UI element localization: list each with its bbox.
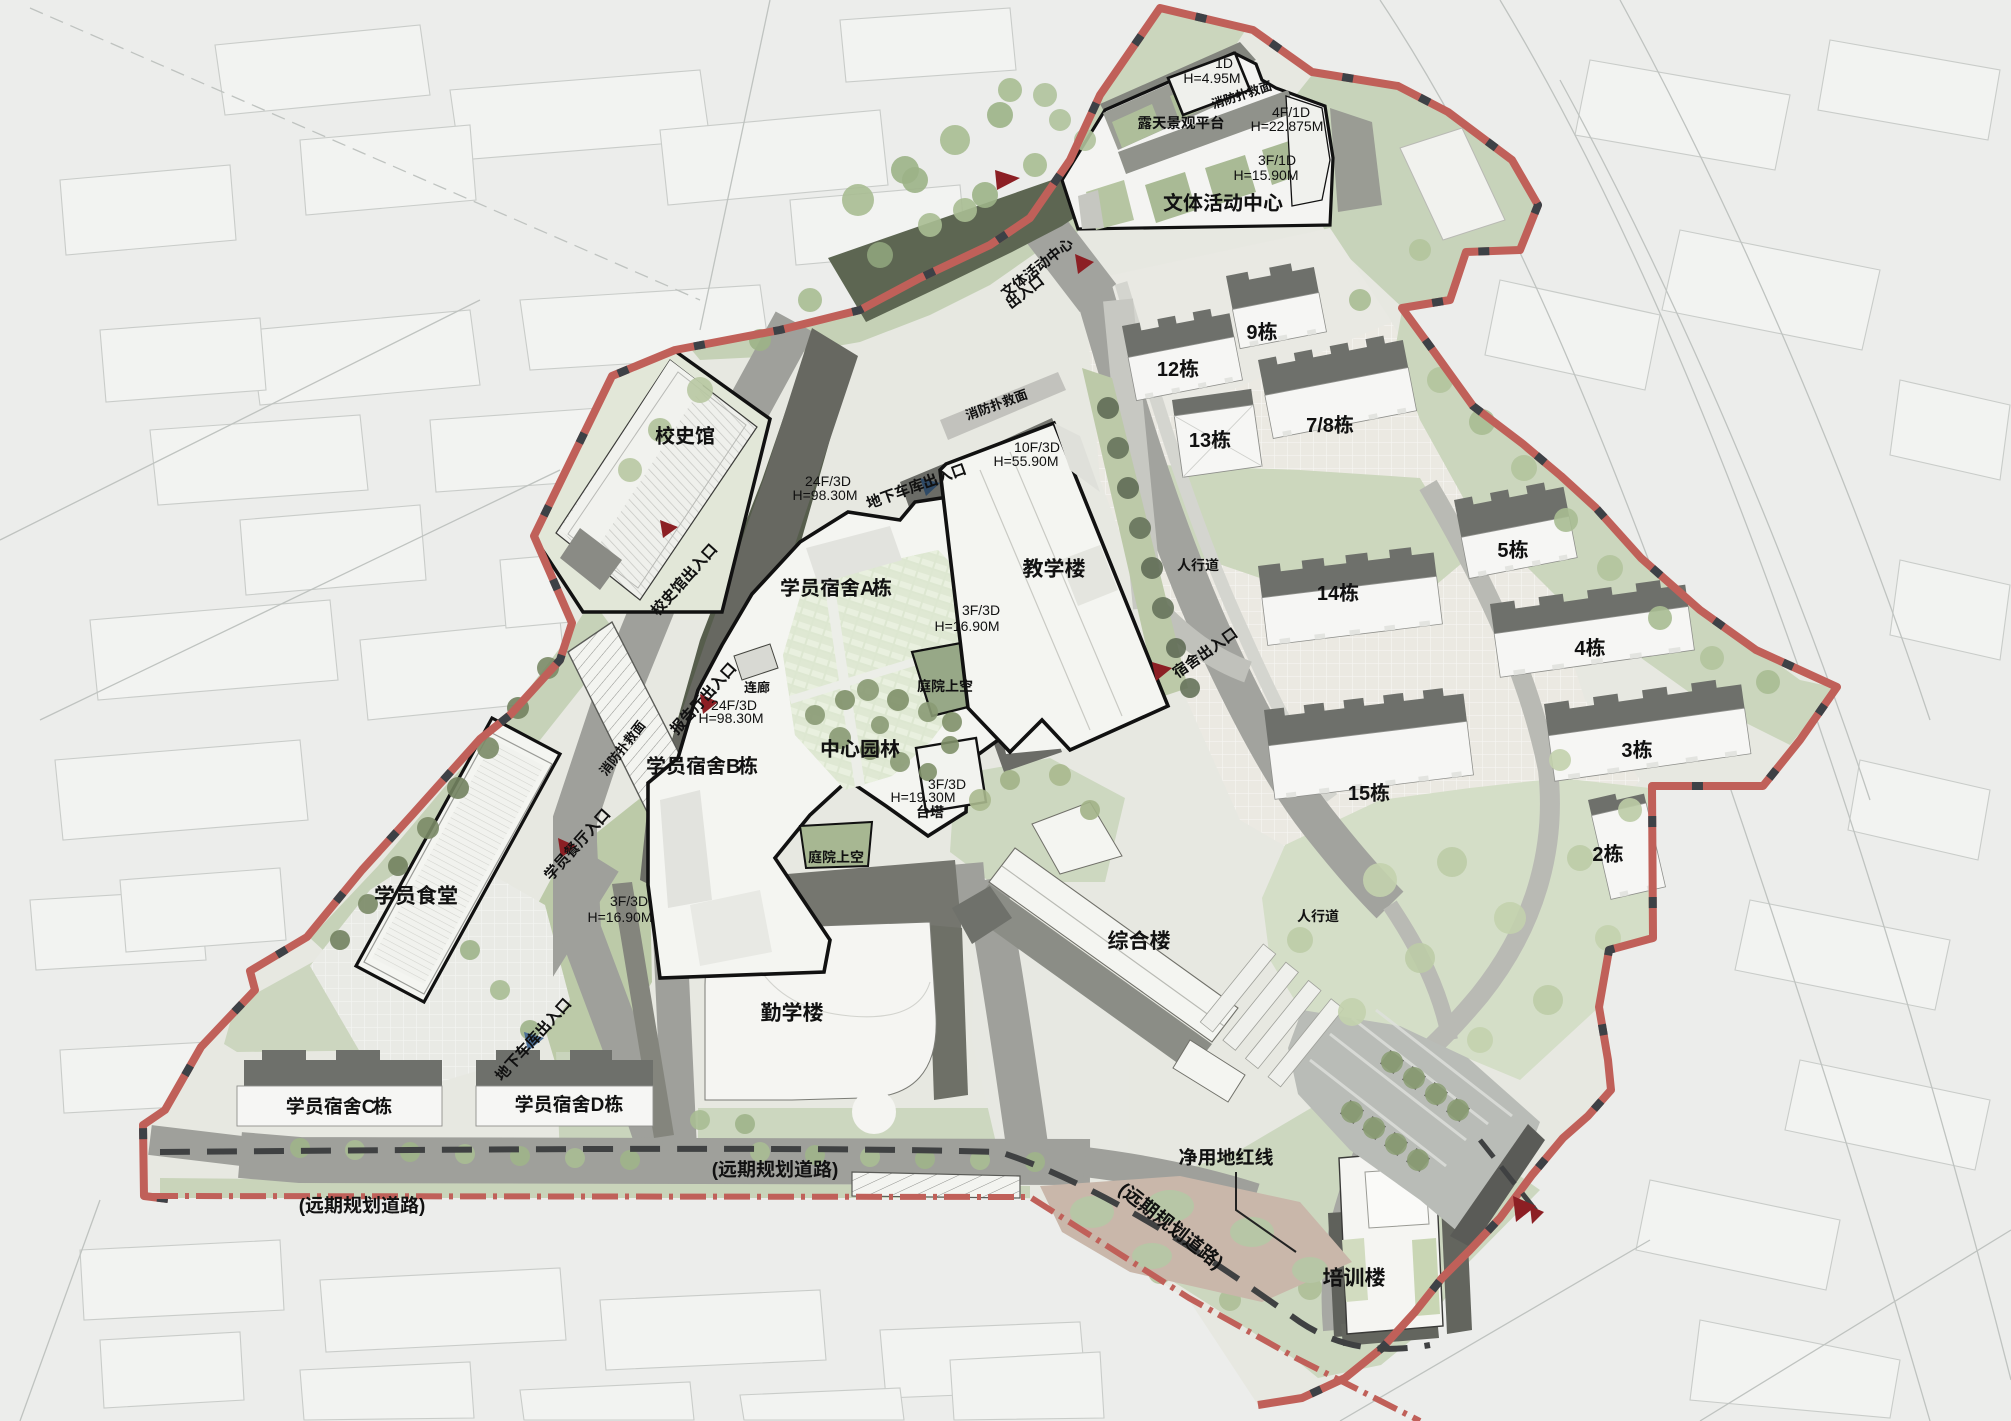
svg-text:A: A xyxy=(860,578,874,600)
svg-text:3F/3D: 3F/3D xyxy=(610,893,648,909)
svg-text:H=98.30M: H=98.30M xyxy=(793,487,858,503)
svg-text:H=22.875M: H=22.875M xyxy=(1251,118,1324,134)
svg-text:H=15.90M: H=15.90M xyxy=(1234,167,1299,183)
svg-text:H=19.30M: H=19.30M xyxy=(891,789,956,805)
svg-text:7/8: 7/8 xyxy=(1306,415,1334,437)
svg-text:1D: 1D xyxy=(1215,55,1233,71)
svg-text:13: 13 xyxy=(1189,430,1211,452)
svg-text:B: B xyxy=(726,756,740,778)
svg-text:12: 12 xyxy=(1157,359,1179,381)
svg-text:): ) xyxy=(419,1196,425,1217)
svg-text:H=16.90M: H=16.90M xyxy=(935,618,1000,634)
svg-text:(: ( xyxy=(712,1160,719,1181)
svg-text:9: 9 xyxy=(1246,322,1257,344)
svg-text:H=4.95M: H=4.95M xyxy=(1183,70,1240,86)
svg-text:D: D xyxy=(591,1095,605,1116)
svg-text:5: 5 xyxy=(1497,540,1508,562)
svg-text:3F/3D: 3F/3D xyxy=(962,602,1000,618)
svg-text:3F/1D: 3F/1D xyxy=(1258,152,1296,168)
svg-text:15: 15 xyxy=(1348,783,1370,805)
svg-text:4: 4 xyxy=(1574,638,1586,660)
svg-text:): ) xyxy=(832,1160,838,1181)
svg-text:H=98.30M: H=98.30M xyxy=(699,710,764,726)
svg-text:C: C xyxy=(362,1097,376,1118)
svg-text:H=55.90M: H=55.90M xyxy=(994,453,1059,469)
svg-text:2: 2 xyxy=(1592,844,1603,866)
svg-text:H=16.90M: H=16.90M xyxy=(588,909,653,925)
svg-text:14: 14 xyxy=(1317,583,1340,605)
svg-text:(: ( xyxy=(299,1196,306,1217)
svg-text:3: 3 xyxy=(1621,740,1632,762)
